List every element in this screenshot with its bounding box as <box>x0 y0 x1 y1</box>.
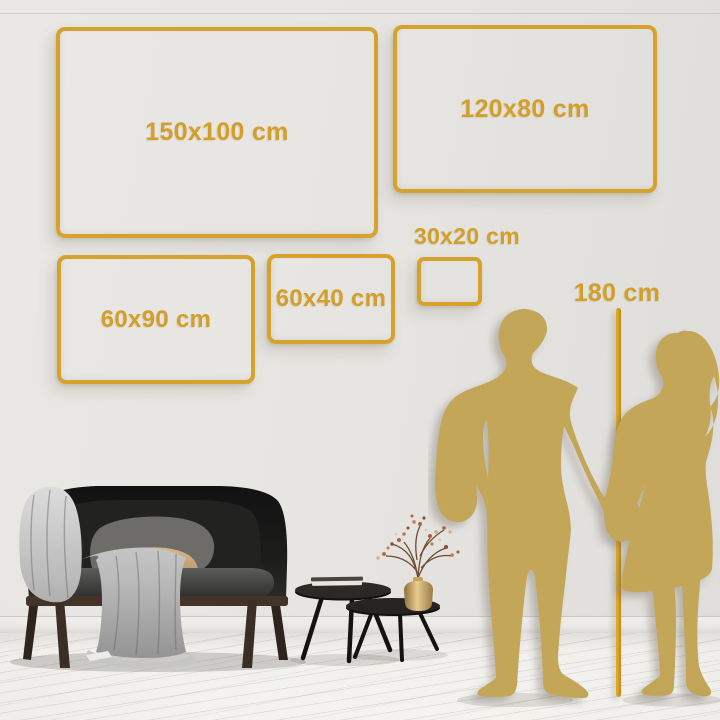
size-label-150x100: 150x100 cm <box>145 118 288 147</box>
couple-silhouettes <box>428 298 720 710</box>
size-frame-60x40: 60x40 cm <box>267 254 395 344</box>
ceiling-line <box>0 13 720 14</box>
size-frame-150x100: 150x100 cm <box>56 27 378 238</box>
woman-silhouette <box>604 331 719 697</box>
size-frame-120x80: 120x80 cm <box>393 25 657 193</box>
size-guide-scene: 150x100 cm 120x80 cm 60x90 cm 60x40 cm 3… <box>0 0 720 720</box>
size-label-120x80: 120x80 cm <box>460 95 589 124</box>
size-frame-60x90: 60x90 cm <box>57 255 255 384</box>
size-label-60x90: 60x90 cm <box>101 306 212 334</box>
sofa-rear-leg-left <box>23 598 39 660</box>
size-label-30x20: 30x20 cm <box>402 223 532 250</box>
blanket-over-arm <box>19 487 81 602</box>
size-label-60x40: 60x40 cm <box>276 285 387 313</box>
books <box>309 577 367 591</box>
